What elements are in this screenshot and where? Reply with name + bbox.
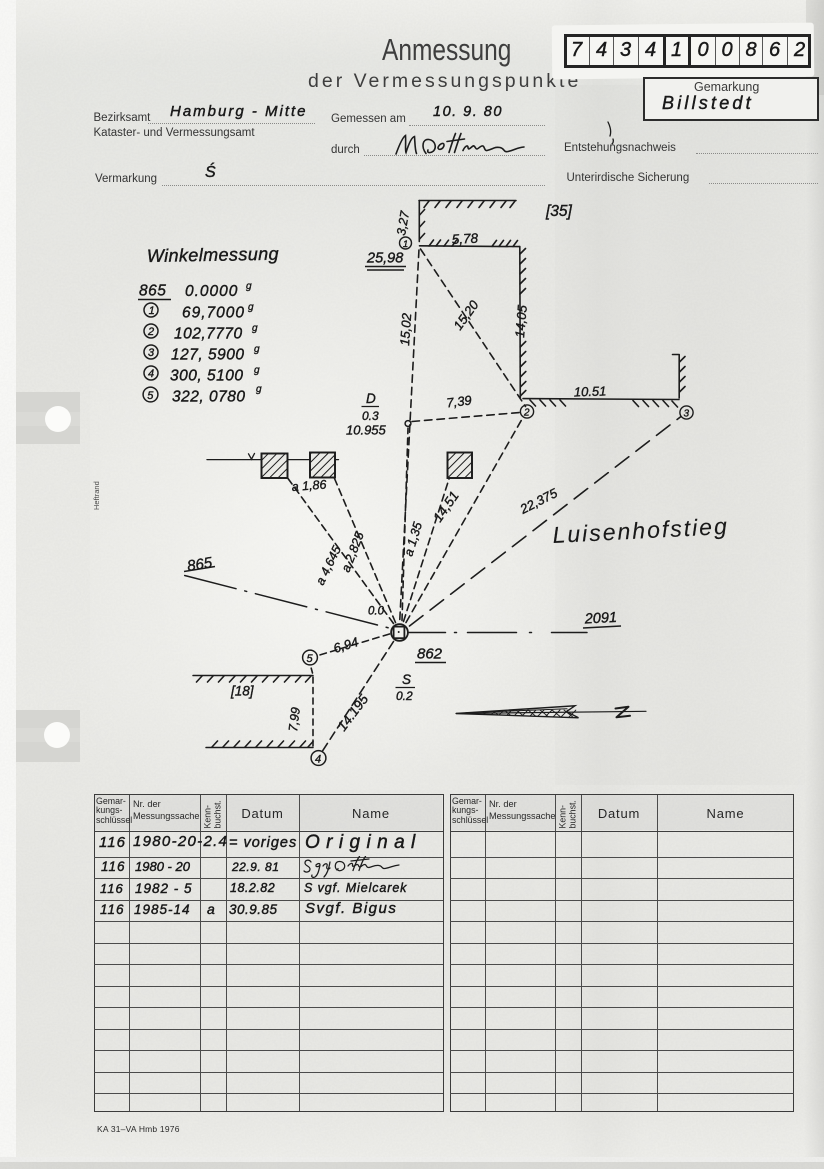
svg-text:0.0: 0.0 bbox=[368, 606, 385, 618]
svg-text:g: g bbox=[256, 384, 262, 395]
svg-text:3,27: 3,27 bbox=[394, 209, 412, 236]
svg-text:3: 3 bbox=[684, 409, 690, 420]
svg-text:g: g bbox=[246, 281, 252, 292]
svg-text:g: g bbox=[254, 365, 260, 376]
svg-text:4: 4 bbox=[315, 754, 321, 766]
svg-text:S: S bbox=[402, 672, 411, 687]
svg-text:g: g bbox=[248, 302, 254, 313]
svg-text:1: 1 bbox=[149, 305, 155, 317]
svg-text:10.955: 10.955 bbox=[346, 423, 387, 438]
svg-text:5: 5 bbox=[147, 390, 154, 402]
svg-text:2: 2 bbox=[147, 326, 154, 338]
svg-text:7,39: 7,39 bbox=[446, 393, 473, 411]
svg-text:22,375: 22,375 bbox=[517, 485, 561, 517]
svg-text:3: 3 bbox=[148, 347, 155, 359]
svg-text:15,20: 15,20 bbox=[450, 297, 482, 333]
svg-text:102,7770: 102,7770 bbox=[174, 326, 243, 343]
svg-text:14,05: 14,05 bbox=[512, 304, 530, 338]
svg-text:14,51: 14,51 bbox=[430, 488, 462, 524]
svg-text:15,02: 15,02 bbox=[397, 312, 414, 346]
svg-text:5: 5 bbox=[307, 653, 314, 665]
svg-text:4: 4 bbox=[148, 368, 154, 380]
svg-text:25,98: 25,98 bbox=[366, 251, 403, 267]
svg-text:10.51: 10.51 bbox=[574, 383, 607, 399]
svg-text:0.2: 0.2 bbox=[396, 689, 413, 703]
svg-text:Winkelmessung: Winkelmessung bbox=[147, 244, 279, 266]
svg-text:862: 862 bbox=[417, 646, 443, 663]
svg-text:69,7000: 69,7000 bbox=[182, 305, 245, 322]
svg-text:a 1,86: a 1,86 bbox=[291, 478, 327, 494]
svg-text:5,78: 5,78 bbox=[451, 231, 479, 247]
svg-text:2: 2 bbox=[523, 408, 530, 419]
svg-text:[35]: [35] bbox=[545, 203, 573, 220]
svg-text:300, 5100: 300, 5100 bbox=[170, 368, 243, 385]
svg-text:865: 865 bbox=[139, 283, 166, 300]
svg-text:g: g bbox=[254, 344, 260, 355]
svg-text:865: 865 bbox=[186, 554, 214, 575]
svg-text:D: D bbox=[366, 391, 376, 406]
svg-text:7,99: 7,99 bbox=[286, 706, 303, 732]
svg-text:14.195: 14.195 bbox=[334, 691, 371, 733]
svg-text:g: g bbox=[252, 323, 258, 334]
svg-text:1: 1 bbox=[403, 239, 408, 250]
svg-text:0.3: 0.3 bbox=[362, 409, 379, 423]
svg-text:6,94: 6,94 bbox=[331, 634, 360, 656]
svg-text:322, 0780: 322, 0780 bbox=[172, 389, 245, 406]
svg-text:[18]: [18] bbox=[230, 684, 255, 699]
svg-text:Luisenhofstieg: Luisenhofstieg bbox=[552, 513, 729, 548]
svg-text:2091: 2091 bbox=[583, 610, 617, 628]
svg-text:0.0000: 0.0000 bbox=[185, 283, 238, 300]
svg-text:127, 5900: 127, 5900 bbox=[171, 347, 244, 364]
svg-text:a 2,825: a 2,825 bbox=[339, 530, 367, 574]
